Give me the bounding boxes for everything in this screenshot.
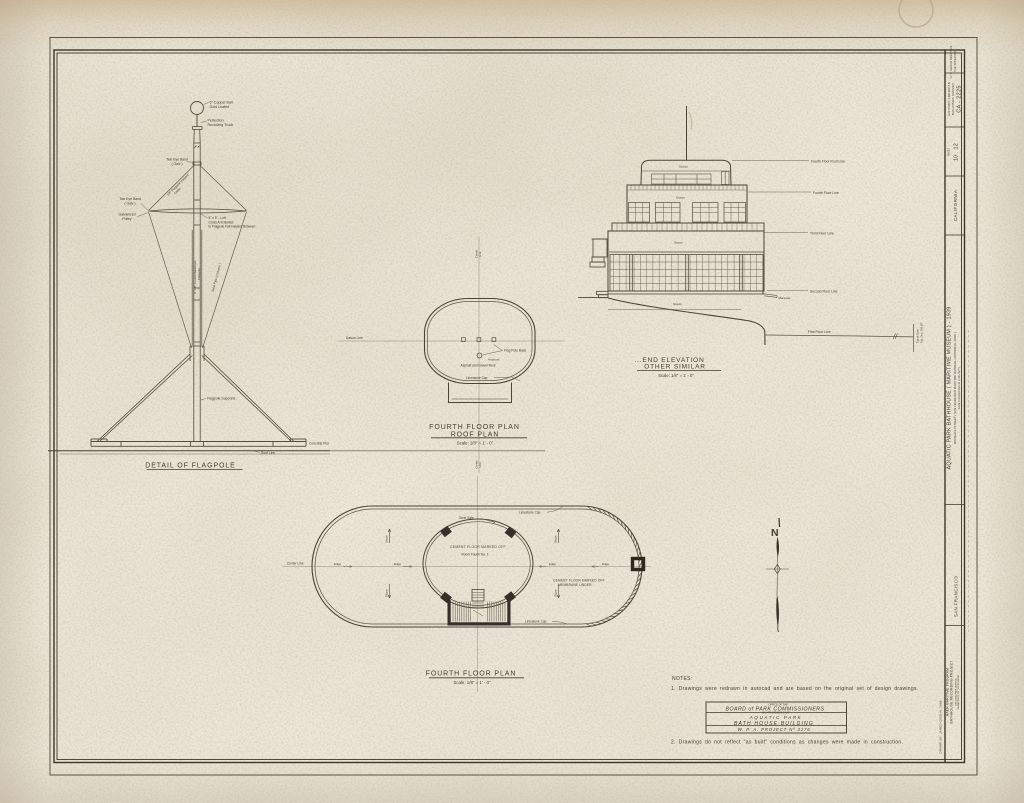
svg-text:10 . 12: 10 . 12 xyxy=(954,143,960,161)
svg-text:1. Drawings were redrawn in: 1. Drawings were redrawn in autocad and … xyxy=(671,686,918,692)
svg-text:Perfection: Perfection xyxy=(208,119,224,123)
svg-text:AQUATIC PARK BATHHOUSE ( MAR: AQUATIC PARK BATHHOUSE ( MARITIME MUSEUM… xyxy=(947,307,953,470)
svg-text:Revolving Truck: Revolving Truck xyxy=(208,123,234,127)
svg-text:MEMBRANE UNDER: MEMBRANE UNDER xyxy=(558,583,592,587)
svg-text:DRAWN BY: JARED-ZIESHA, 1998: DRAWN BY: JARED-ZIESHA, 1998 xyxy=(939,700,943,753)
svg-text:Room Fourth No. 1: Room Fourth No. 1 xyxy=(461,553,488,557)
svg-text:OTHER SIMILAR: OTHER SIMILAR xyxy=(644,364,706,371)
svg-text:CEMENT FLOOR MARKED OFF: CEMENT FLOOR MARKED OFF xyxy=(450,545,506,549)
svg-text:SAN FRANCISCO: SAN FRANCISCO xyxy=(954,576,959,617)
svg-text:Anchors: Anchors xyxy=(488,357,500,361)
svg-text:Slope: Slope xyxy=(385,589,389,597)
svg-text:( Galv ): ( Galv ) xyxy=(171,162,182,166)
svg-text:Second Floor Line: Second Floor Line xyxy=(810,289,838,293)
svg-text:NATIONAL PARK SERVICE: NATIONAL PARK SERVICE xyxy=(954,678,957,706)
svg-text:Edge: Edge xyxy=(602,562,609,566)
svg-text:DEPARTMENT OF THE INTERIOR: DEPARTMENT OF THE INTERIOR xyxy=(957,674,960,709)
svg-text:FOURTH FLOOR PLAN: FOURTH FLOOR PLAN xyxy=(429,424,520,431)
svg-text:W. P. A. PROJECT Nº 2176: W. P. A. PROJECT Nº 2176 xyxy=(737,727,810,732)
svg-text:Limestone Cap: Limestone Cap xyxy=(525,620,547,624)
svg-text:Pulley: Pulley xyxy=(122,217,132,221)
svg-text:U.S. DEPARTMENT OF: U.S. DEPARTMENT OF xyxy=(949,45,953,77)
svg-text:SAN FRANCISCO COUNTY: SAN FRANCISCO COUNTY xyxy=(957,367,961,410)
svg-text:Stucco: Stucco xyxy=(679,165,688,169)
svg-text:FOURTH FLOOR PLAN: FOURTH FLOOR PLAN xyxy=(426,671,517,678)
svg-text:6" Copper Ball: 6" Copper Ball xyxy=(210,101,233,105)
svg-text:Flagpole Supports: Flagpole Supports xyxy=(207,397,236,401)
svg-text:THE INTERIOR: THE INTERIOR xyxy=(953,51,957,72)
svg-text:Nat. Geo. 100.00': Nat. Geo. 100.00' xyxy=(920,322,924,343)
svg-text:Line: Line xyxy=(478,462,482,468)
svg-text:Scale: 1/8" = 1' - 0": Scale: 1/8" = 1' - 0" xyxy=(658,373,694,378)
svg-text:Edge: Edge xyxy=(334,562,341,566)
svg-text:Slope: Slope xyxy=(385,535,389,543)
svg-text:Scale: 1/8" = 1' - 0": Scale: 1/8" = 1' - 0" xyxy=(453,680,491,685)
svg-text:CALIFORNIA: CALIFORNIA xyxy=(953,189,958,221)
svg-text:Fourth Floor Line: Fourth Floor Line xyxy=(813,191,839,195)
svg-text:Stucco: Stucco xyxy=(674,241,683,245)
svg-text:SAN FRANCISCO CALIF.: SAN FRANCISCO CALIF. xyxy=(762,711,790,714)
svg-text:Concrete Pier: Concrete Pier xyxy=(309,441,330,445)
svg-text:Center Line: Center Line xyxy=(287,562,304,566)
svg-text:Edge: Edge xyxy=(549,562,556,566)
svg-text:Flag Pole Base: Flag Pole Base xyxy=(504,349,527,353)
svg-text:BUILDINGS SURVEY: BUILDINGS SURVEY xyxy=(951,83,955,116)
svg-text:Line: Line xyxy=(478,251,482,257)
svg-text:( Galv ): ( Galv ) xyxy=(124,201,135,205)
svg-text:2. Drawings do not reflect: 2. Drawings do not reflect "as built" co… xyxy=(671,740,903,746)
svg-text:Datum Line: Datum Line xyxy=(346,336,363,340)
svg-text:Stucco: Stucco xyxy=(676,196,685,200)
svg-text:BATH HOUSE BUILDING: BATH HOUSE BUILDING xyxy=(734,721,814,727)
svg-text:DETAIL OF FLAGPOLE: DETAIL OF FLAGPOLE xyxy=(145,463,236,470)
svg-text:Slope: Slope xyxy=(554,589,558,597)
svg-text:Limestone Cap: Limestone Cap xyxy=(466,376,488,380)
svg-text:SHEET: SHEET xyxy=(947,147,951,156)
svg-text:Scale: 1/8" = 1' - 0": Scale: 1/8" = 1' - 0" xyxy=(457,440,494,445)
svg-text:Third Floor Line: Third Floor Line xyxy=(810,231,834,235)
svg-text:Gold Leafed: Gold Leafed xyxy=(210,105,230,109)
svg-text:Roof Line: Roof Line xyxy=(261,451,275,455)
svg-text:to Flagpole Fall Halyard B: to Flagpole Fall Halyard Between xyxy=(209,225,256,229)
svg-text:AQUATIC PARK: AQUATIC PARK xyxy=(749,715,803,720)
svg-text:N: N xyxy=(771,527,779,539)
svg-text:Asphalt and Gravel Roof: Asphalt and Gravel Roof xyxy=(461,363,496,367)
svg-text:CA - 2225: CA - 2225 xyxy=(957,85,963,113)
svg-text:Edge: Edge xyxy=(394,562,401,566)
svg-text:NOTES:: NOTES: xyxy=(672,676,692,682)
svg-text:Limestone Cap: Limestone Cap xyxy=(519,511,541,515)
svg-text:First Floor Line: First Floor Line xyxy=(808,330,831,334)
svg-text:Steel Safe: Steel Safe xyxy=(459,516,474,520)
svg-text:Fourth Floor Roof Line: Fourth Floor Roof Line xyxy=(811,159,845,163)
svg-text:Marquise: Marquise xyxy=(779,296,791,300)
svg-text:Flagpole: Flagpole xyxy=(197,268,201,280)
svg-text:Top of Curb: Top of Curb xyxy=(916,329,920,343)
svg-text:BATHHOUSE RECORDING PROJECT: BATHHOUSE RECORDING PROJECT xyxy=(950,660,954,723)
svg-text:Stucco: Stucco xyxy=(673,302,682,306)
svg-text:Slope: Slope xyxy=(554,535,558,543)
